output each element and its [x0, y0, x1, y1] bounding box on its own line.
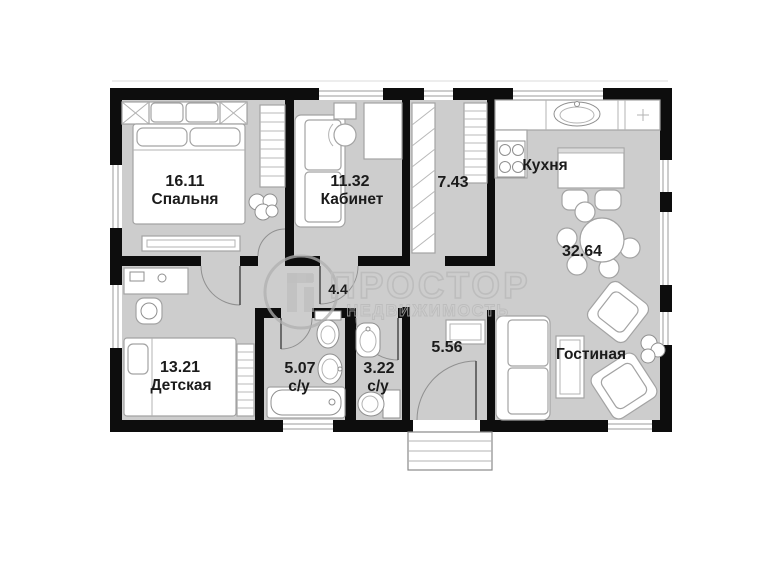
kitchen-stove — [497, 141, 525, 177]
label-bathroom-small-name: с/у — [367, 378, 389, 395]
label-children-area: 13.21 — [160, 359, 200, 376]
corridor-wardrobe-right — [464, 103, 487, 183]
sink-small — [356, 323, 380, 357]
porch-steps — [408, 432, 492, 470]
dining-chair-2 — [595, 190, 621, 210]
round-chair-1 — [575, 202, 595, 222]
office-desk — [364, 103, 402, 159]
watermark-brand: ПРОСТОР — [329, 265, 531, 306]
wardrobe-drawer-1 — [151, 103, 183, 122]
pillow-left — [137, 128, 187, 146]
label-living-name: Гостиная — [556, 346, 626, 363]
office-side-table — [334, 103, 356, 119]
top-faint-line — [112, 80, 668, 82]
bed-bench — [142, 236, 240, 251]
label-bathroom-small-area: 3.22 — [363, 360, 394, 377]
corridor-wardrobe-left — [412, 103, 435, 253]
label-kitchen-living-area: 32.64 — [562, 243, 602, 260]
label-kitchen-name: Кухня — [522, 157, 567, 174]
wall-h-stub-doors — [240, 256, 258, 266]
label-corridor-area: 7.43 — [437, 174, 468, 191]
label-office-area: 11.32 — [330, 173, 369, 190]
label-bathroom-big-area: 5.07 — [284, 360, 315, 377]
children-desk — [124, 268, 188, 294]
children-chair — [136, 298, 162, 324]
outer-wall-bottom — [110, 420, 672, 432]
sink-big — [318, 354, 342, 384]
pillow-right — [190, 128, 240, 146]
wall-corridor-kitchen — [487, 100, 495, 256]
watermark-subtitle: НЕДВИЖИМОСТЬ — [346, 302, 509, 320]
living-sofa — [496, 316, 550, 420]
wall-h-bedroom-children — [122, 256, 201, 266]
entrance-opening — [413, 420, 480, 432]
label-bedroom-name: Спальня — [152, 191, 219, 208]
window-corridor-top — [424, 88, 453, 100]
wall-office-corridor — [402, 100, 410, 266]
wardrobe-x-right — [220, 102, 247, 124]
label-hallway-area: 4.4 — [328, 281, 348, 297]
window-bedroom-left — [110, 165, 122, 228]
label-bedroom-area: 16.11 — [165, 173, 204, 190]
window-office-top — [319, 88, 383, 100]
window-living-bottom — [608, 420, 652, 432]
label-office-name: Кабинет — [321, 191, 384, 208]
ladder-shelf — [260, 105, 285, 187]
outer-wall-left — [110, 88, 122, 432]
label-children-name: Детская — [150, 377, 211, 394]
wall-children-bath — [255, 308, 264, 420]
window-kitchen-top — [513, 88, 603, 100]
wall-entry-living — [487, 310, 495, 432]
wardrobe-drawer-2 — [186, 103, 218, 122]
floor-plan-page: ПРОСТОР НЕДВИЖИМОСТЬ 16.11 Спальня 11.32… — [0, 0, 782, 572]
wardrobe-x-left — [122, 102, 149, 124]
label-bathroom-big-name: с/у — [288, 378, 310, 395]
window-children-left — [110, 285, 122, 348]
kitchen-sink — [554, 102, 600, 127]
floor-plan-drawing: ПРОСТОР НЕДВИЖИМОСТЬ 16.11 Спальня 11.32… — [0, 0, 782, 572]
wall-bedroom-office — [285, 100, 294, 266]
children-wardrobe — [237, 344, 254, 416]
children-pillow — [128, 344, 148, 374]
label-entry-area: 5.56 — [431, 339, 462, 356]
window-bath-bottom — [283, 420, 333, 432]
wall-bath-bath — [345, 308, 356, 420]
window-right-1 — [660, 160, 672, 192]
wall-bath-entry — [402, 307, 410, 420]
window-right-3 — [660, 312, 672, 345]
window-right-2 — [660, 212, 672, 285]
